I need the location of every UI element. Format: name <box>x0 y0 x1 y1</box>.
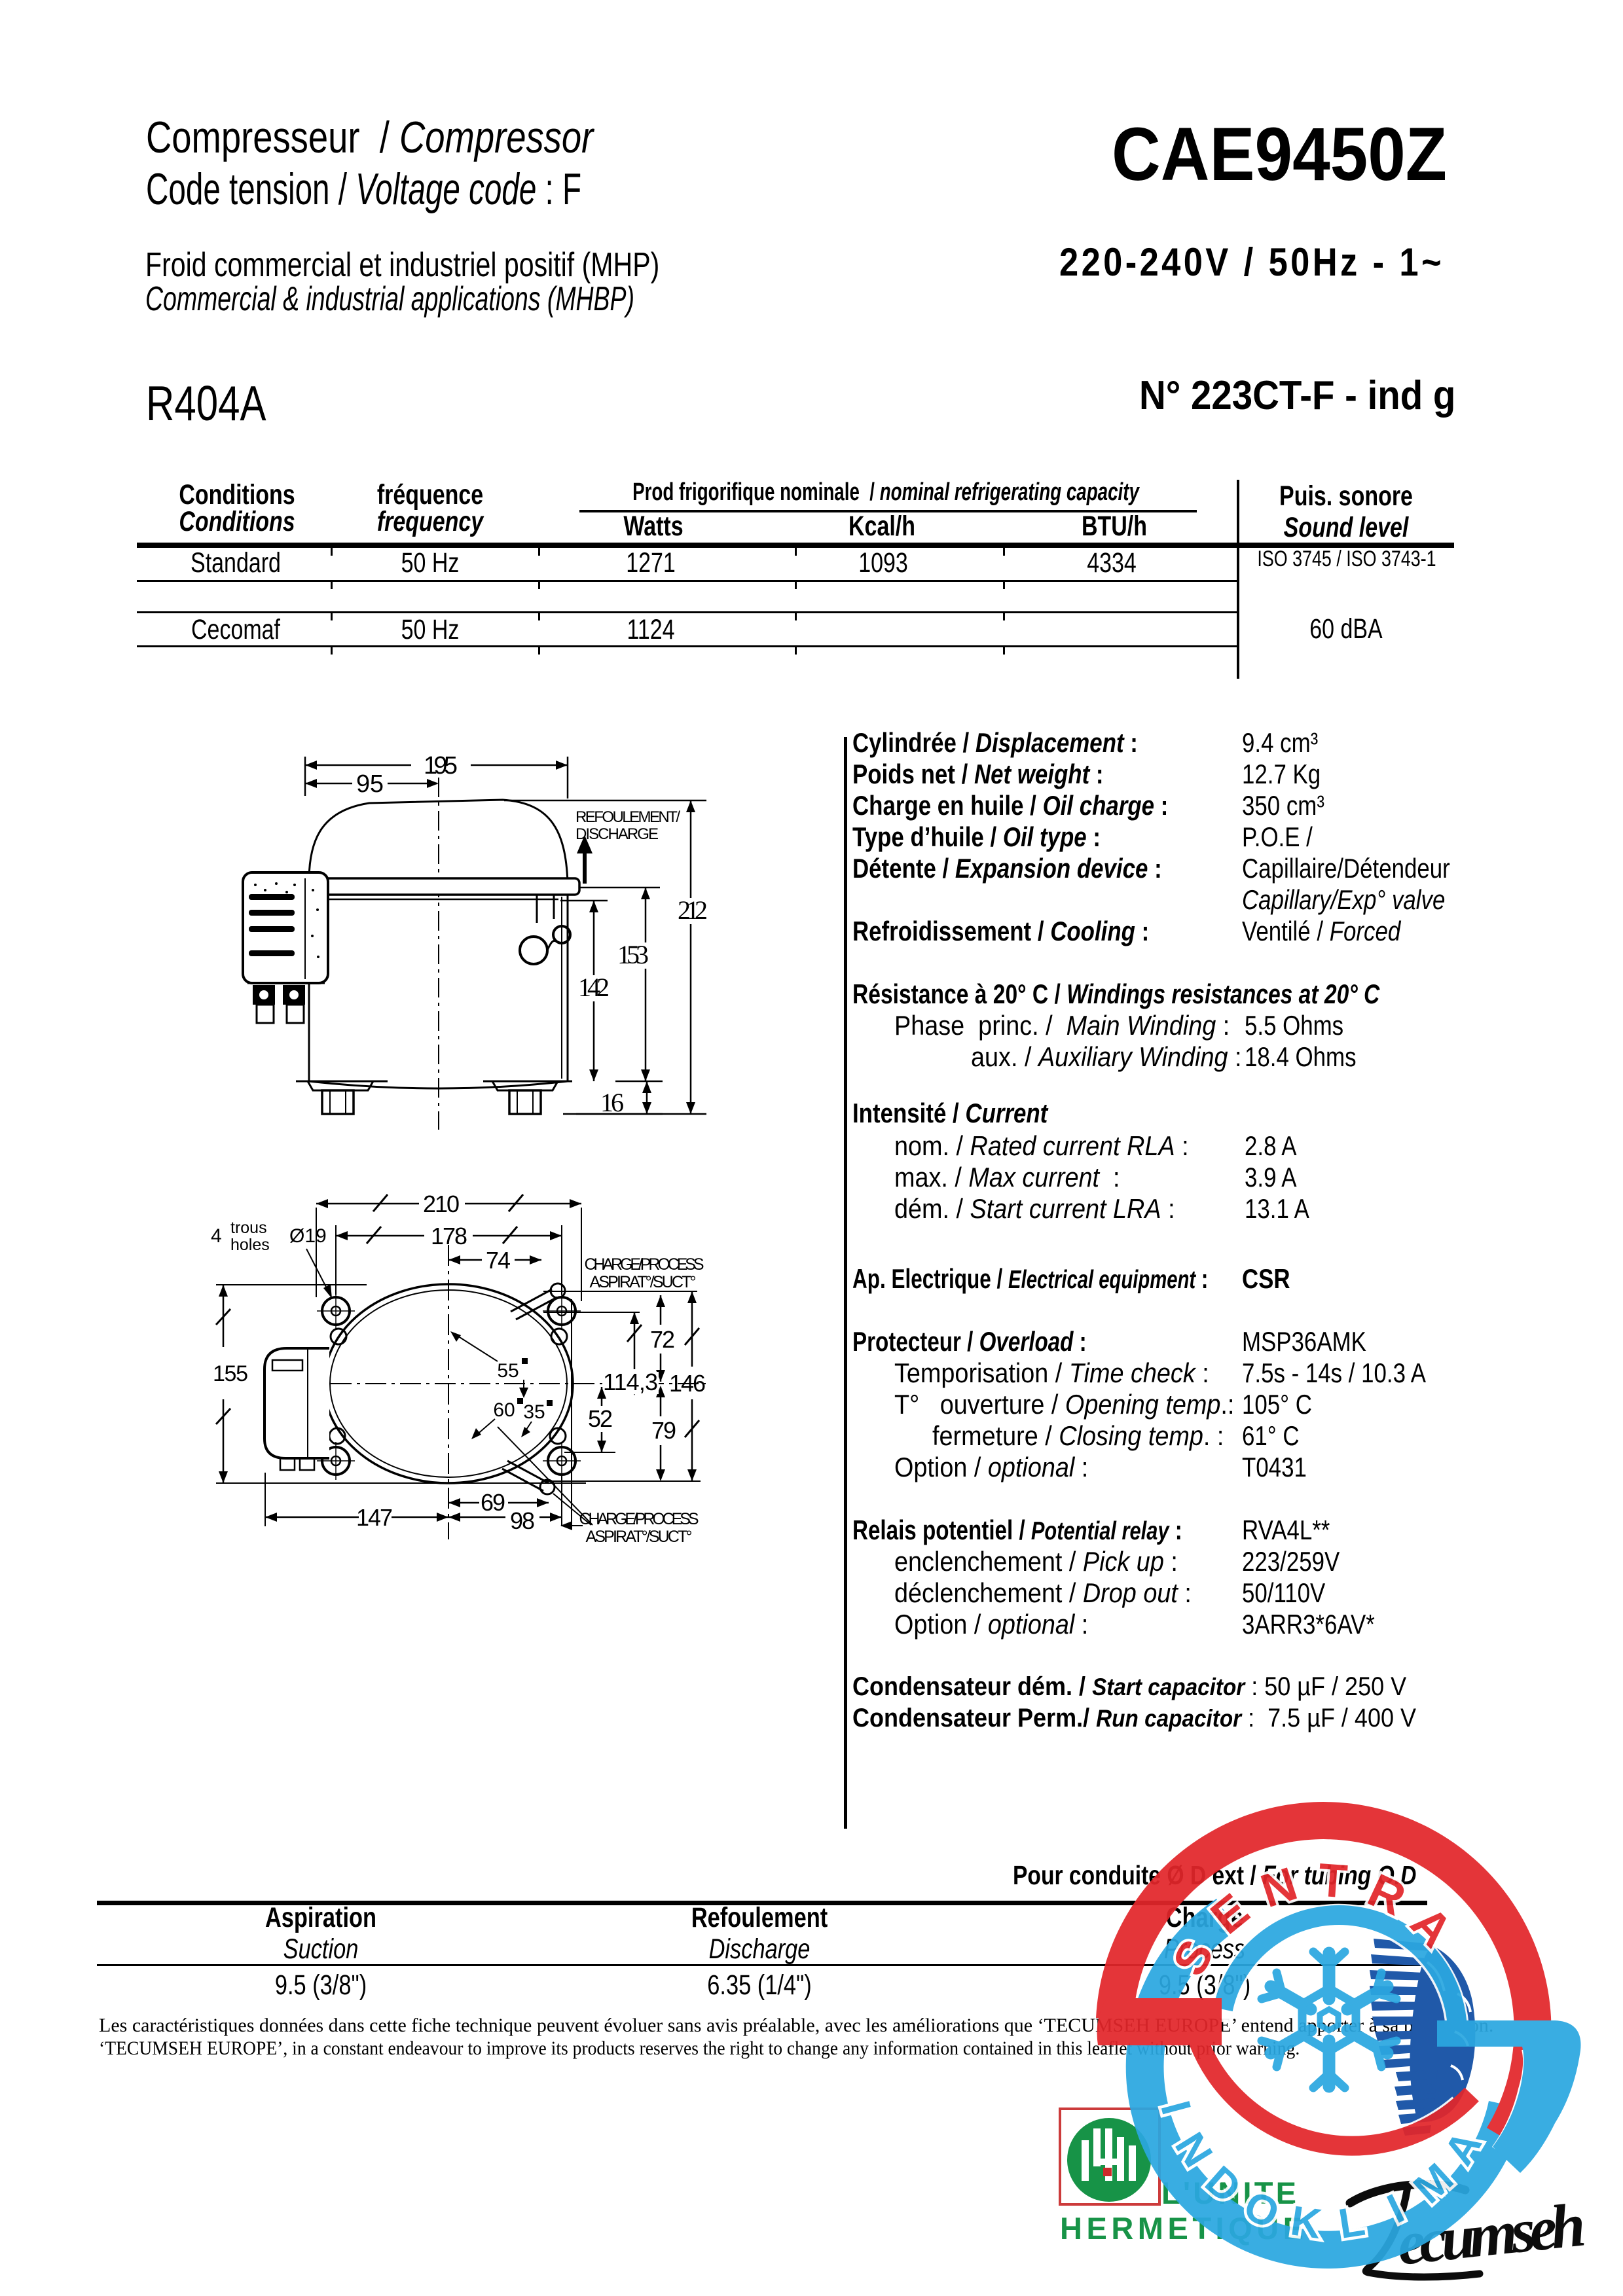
svg-text:ASPIRAT°/SUCT°: ASPIRAT°/SUCT° <box>590 1273 697 1291</box>
svg-text:79: 79 <box>651 1417 676 1444</box>
svg-text:95: 95 <box>356 770 384 798</box>
svg-text:ASPIRAT°/SUCT°: ASPIRAT°/SUCT° <box>586 1528 693 1546</box>
svg-text:DISCHARGE: DISCHARGE <box>575 825 659 843</box>
svg-text:Ø19: Ø19 <box>289 1225 327 1247</box>
svg-text:153: 153 <box>617 940 649 969</box>
svg-text:35: 35 <box>523 1401 545 1423</box>
svg-text:N: N <box>1254 1857 1303 1918</box>
svg-text:142: 142 <box>578 973 610 1002</box>
svg-text:REFOULEMENT/: REFOULEMENT/ <box>575 808 680 826</box>
svg-text:155: 155 <box>213 1361 248 1386</box>
svg-text:146: 146 <box>669 1370 706 1397</box>
svg-text:4: 4 <box>211 1225 222 1247</box>
svg-text:T: T <box>1317 1854 1349 1909</box>
svg-text:CHARGE/PROCESS: CHARGE/PROCESS <box>579 1510 699 1528</box>
svg-text:60: 60 <box>493 1399 515 1421</box>
svg-text:holes: holes <box>230 1236 270 1254</box>
svg-text:52: 52 <box>588 1405 613 1432</box>
svg-text:69: 69 <box>481 1489 505 1516</box>
svg-text:16: 16 <box>600 1088 624 1117</box>
svg-text:55: 55 <box>497 1360 519 1382</box>
svg-text:72: 72 <box>650 1326 675 1353</box>
svg-text:trous: trous <box>230 1219 267 1237</box>
svg-text:195: 195 <box>424 752 458 780</box>
svg-text:114,3: 114,3 <box>603 1369 658 1395</box>
svg-text:147: 147 <box>356 1504 393 1531</box>
svg-text:98: 98 <box>510 1507 535 1534</box>
svg-text:74: 74 <box>486 1247 511 1274</box>
svg-text:212: 212 <box>678 895 708 925</box>
svg-text:CHARGE/PROCESS: CHARGE/PROCESS <box>585 1255 704 1274</box>
svg-text:210: 210 <box>423 1191 460 1217</box>
